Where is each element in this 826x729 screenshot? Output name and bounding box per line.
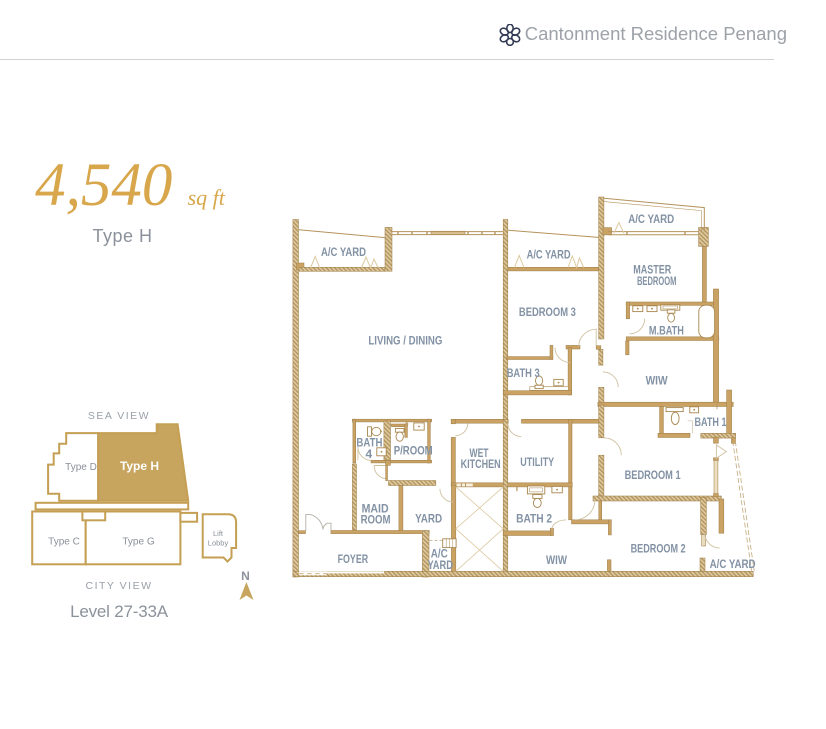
svg-text:BATH 2: BATH 2 bbox=[516, 512, 552, 526]
svg-text:UTILITY: UTILITY bbox=[520, 455, 554, 469]
svg-text:BATH 3: BATH 3 bbox=[507, 366, 540, 380]
svg-text:A/C YARD: A/C YARD bbox=[321, 245, 366, 259]
svg-text:KITCHEN: KITCHEN bbox=[461, 457, 501, 471]
svg-text:BATH 1: BATH 1 bbox=[695, 415, 727, 429]
svg-text:BEDROOM 2: BEDROOM 2 bbox=[631, 542, 686, 556]
svg-text:M.BATH: M.BATH bbox=[649, 324, 684, 338]
svg-text:YARD: YARD bbox=[415, 512, 442, 526]
svg-text:Type D: Type D bbox=[65, 462, 97, 473]
svg-text:N: N bbox=[241, 569, 250, 583]
svg-text:A/C YARD: A/C YARD bbox=[710, 557, 756, 571]
svg-text:P/ROOM: P/ROOM bbox=[394, 444, 433, 458]
svg-text:WIW: WIW bbox=[646, 373, 669, 387]
svg-text:BEDROOM 3: BEDROOM 3 bbox=[519, 305, 576, 319]
svg-text:Type G: Type G bbox=[122, 537, 154, 548]
svg-text:CITY VIEW: CITY VIEW bbox=[86, 580, 153, 592]
svg-text:WIW: WIW bbox=[546, 553, 568, 567]
svg-text:Type C: Type C bbox=[48, 537, 80, 548]
svg-text:BEDROOM: BEDROOM bbox=[637, 274, 677, 288]
svg-text:A/C YARD: A/C YARD bbox=[527, 248, 571, 262]
svg-text:BEDROOM 1: BEDROOM 1 bbox=[625, 468, 681, 482]
svg-text:ROOM: ROOM bbox=[361, 513, 391, 527]
svg-text:LIVING / DINING: LIVING / DINING bbox=[368, 334, 442, 348]
svg-text:FOYER: FOYER bbox=[338, 552, 369, 566]
svg-text:SEA VIEW: SEA VIEW bbox=[88, 410, 150, 422]
svg-text:YARD: YARD bbox=[427, 558, 453, 572]
svg-text:A/C YARD: A/C YARD bbox=[628, 212, 674, 226]
svg-text:Lobby: Lobby bbox=[208, 539, 229, 548]
svg-text:4: 4 bbox=[366, 447, 373, 461]
svg-text:Lift: Lift bbox=[213, 529, 224, 538]
svg-text:Type H: Type H bbox=[120, 459, 159, 473]
